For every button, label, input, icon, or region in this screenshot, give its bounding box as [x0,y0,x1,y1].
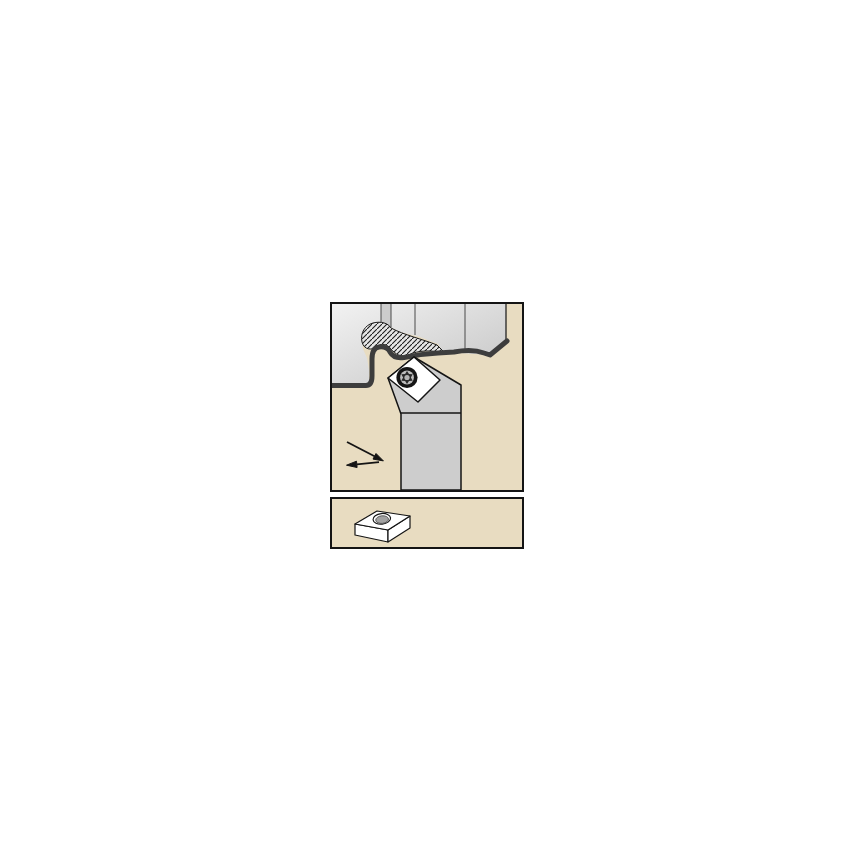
feed-direction-arrow-icon [347,442,384,468]
clamp-screw-icon [396,367,417,388]
application-illustration [332,304,522,490]
application-panel [330,302,524,492]
insert-3d-illustration [332,499,522,547]
catalog-illustration [0,0,854,854]
insert-shape-panel [330,497,524,549]
insert-3d-graphic [355,511,410,542]
